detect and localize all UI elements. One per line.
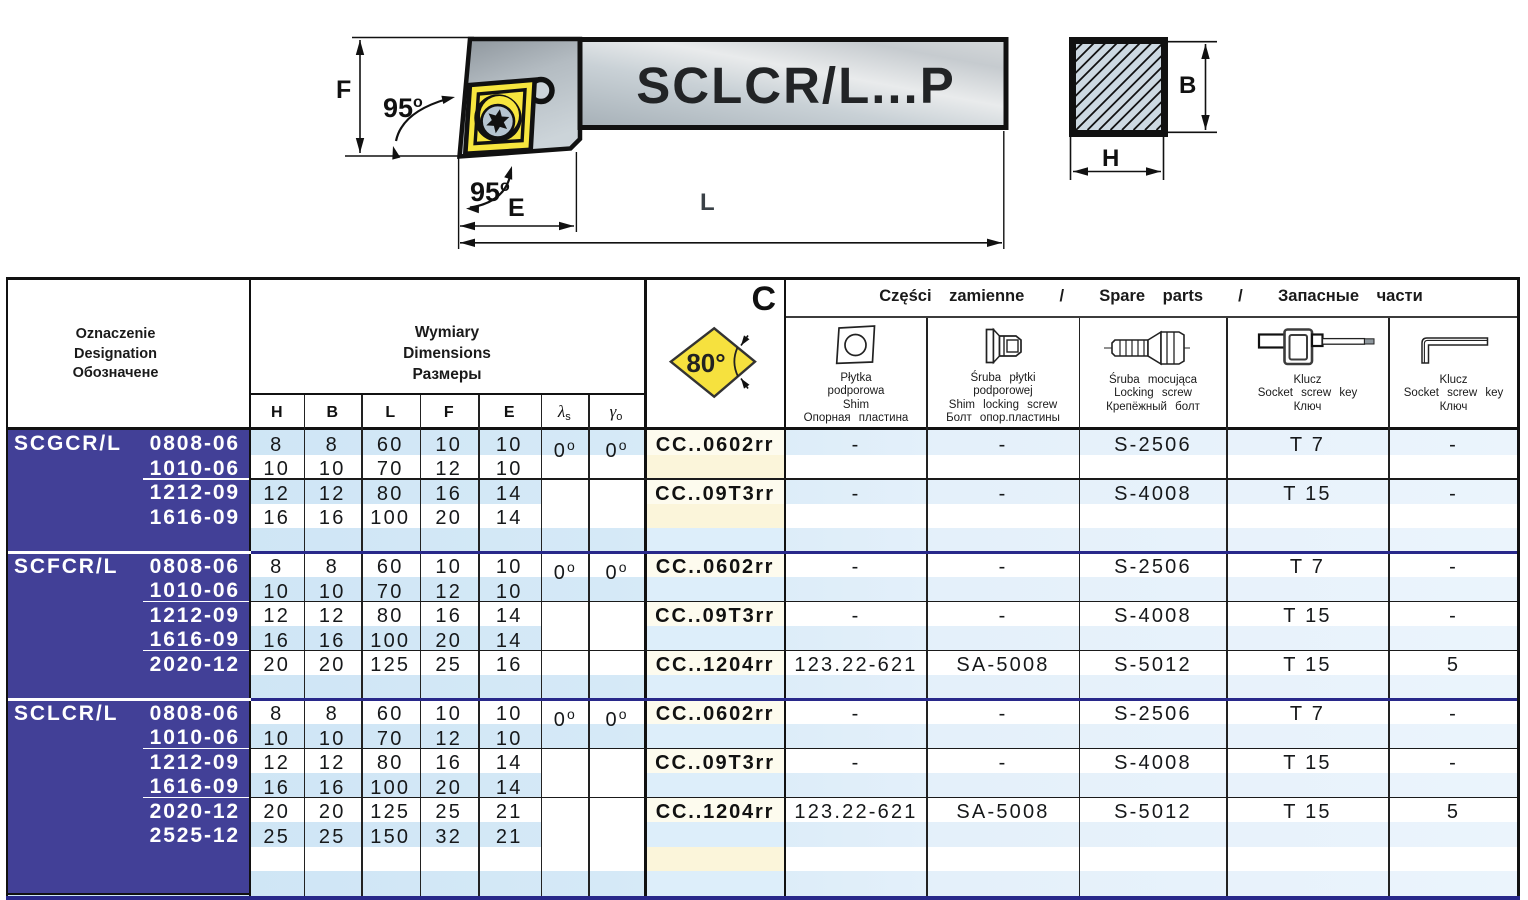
svg-text:B: B bbox=[1179, 72, 1196, 99]
svg-text:E: E bbox=[508, 194, 525, 222]
svg-text:L: L bbox=[700, 189, 715, 216]
svg-text:80°: 80° bbox=[686, 348, 725, 378]
svg-text:SCLCR/L...P: SCLCR/L...P bbox=[636, 57, 956, 114]
svg-text:F: F bbox=[336, 76, 351, 104]
svg-text:H: H bbox=[1102, 145, 1119, 172]
svg-text:95o: 95o bbox=[383, 93, 423, 123]
